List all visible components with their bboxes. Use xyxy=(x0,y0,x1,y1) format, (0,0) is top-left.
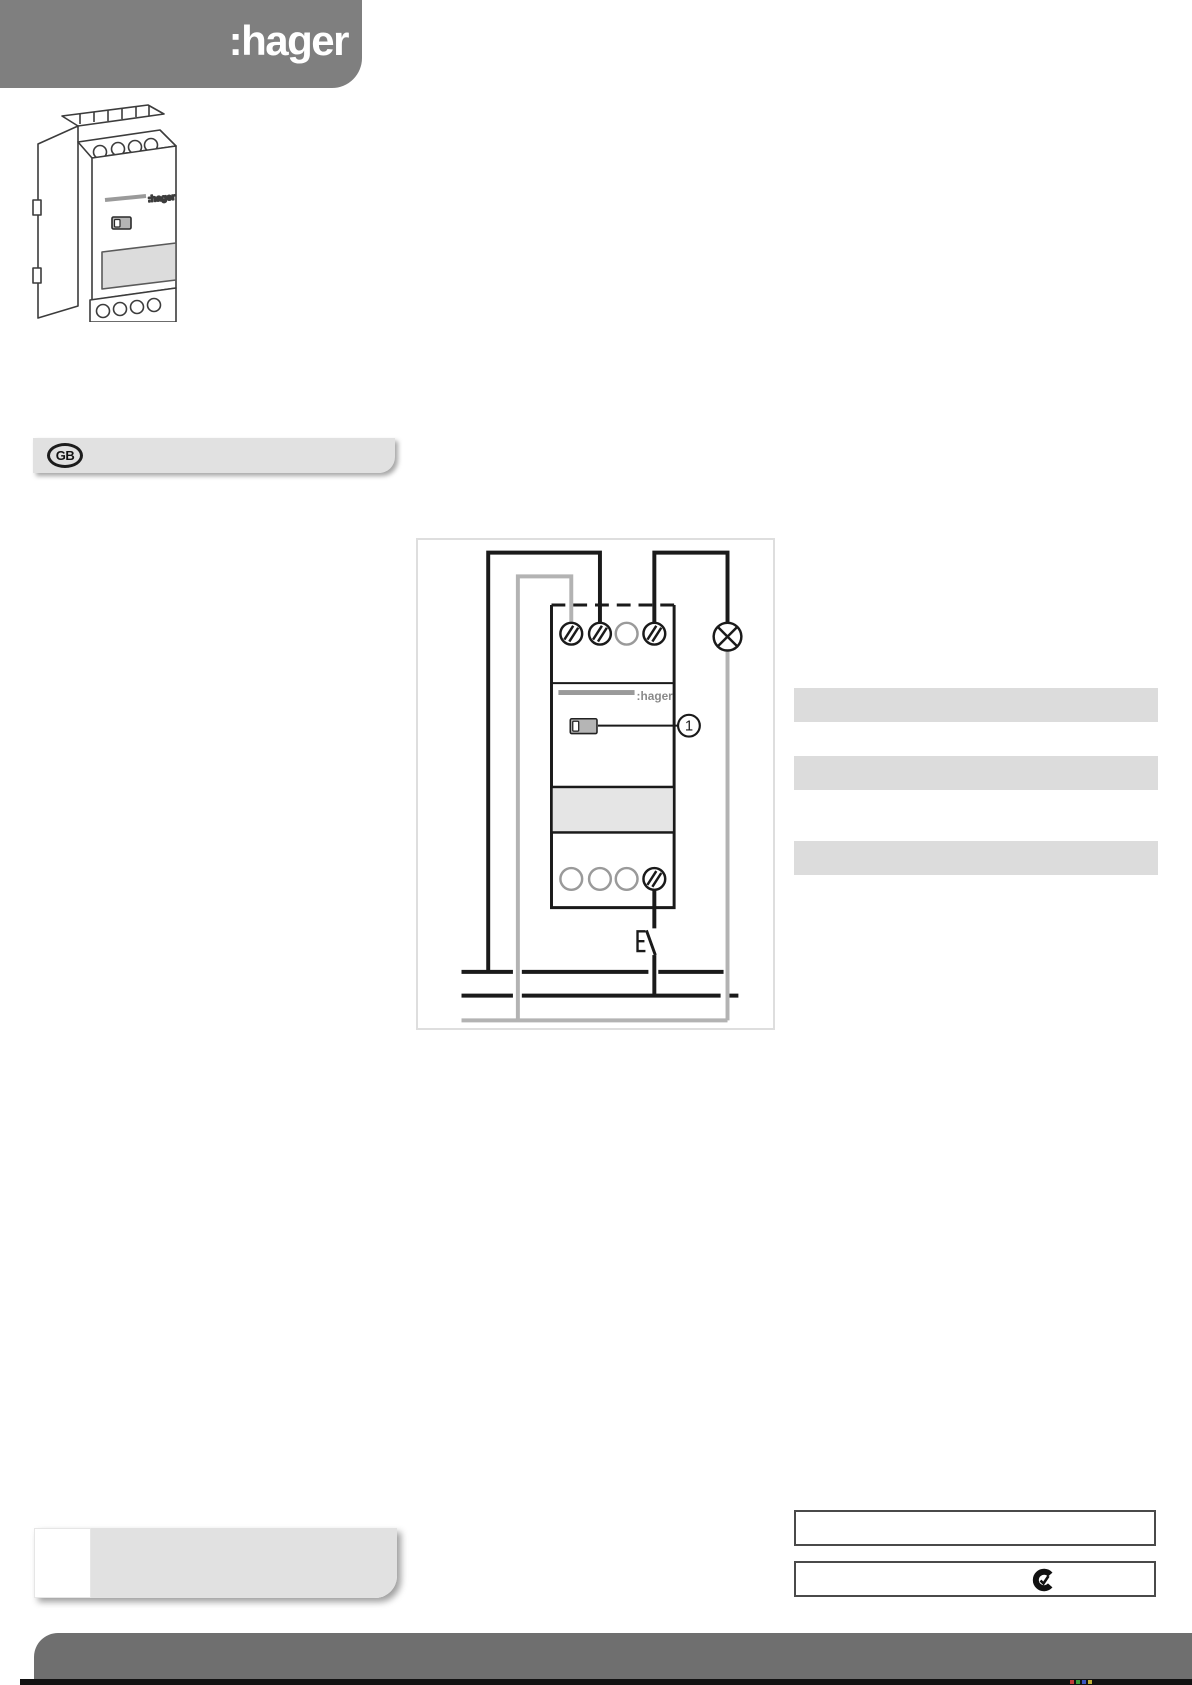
bottom-terminals xyxy=(560,868,665,890)
print-registration-marks xyxy=(1070,1680,1092,1684)
device-outline xyxy=(551,605,674,908)
terminal-plain-icon xyxy=(589,868,611,890)
terminal-plain-icon xyxy=(616,868,638,890)
callout-1-label: 1 xyxy=(685,719,693,735)
placeholder-bar-3 xyxy=(794,841,1158,875)
lamp-icon xyxy=(714,623,742,651)
terminal-hatched-icon xyxy=(643,868,665,890)
c-tick-icon xyxy=(1032,1568,1056,1592)
footer-bar xyxy=(34,1633,1192,1685)
device-label-recess xyxy=(102,243,176,289)
wiring-diagram: :hager 1 xyxy=(418,540,773,1028)
terminal-plain-icon xyxy=(616,623,638,645)
screw-terminal-icon xyxy=(131,301,144,314)
din-clip-notch xyxy=(33,268,41,283)
header-logo-bar: :hager xyxy=(0,0,362,88)
placeholder-bar-1 xyxy=(794,688,1158,722)
device-din-plate xyxy=(38,126,78,318)
spec-box-1 xyxy=(794,1510,1156,1546)
hager-logo: :hager xyxy=(229,20,348,68)
language-bar: GB xyxy=(33,438,395,473)
spec-box-2 xyxy=(794,1561,1156,1597)
push-button-icon xyxy=(638,930,656,955)
footnote-bar-white-segment xyxy=(34,1528,91,1598)
top-terminals xyxy=(560,623,665,645)
wire-live-black xyxy=(462,553,739,996)
footnote-bar xyxy=(34,1528,397,1598)
screw-terminal-icon xyxy=(148,299,161,312)
device-slider-knob xyxy=(115,220,121,228)
terminal-hatched-icon xyxy=(560,623,582,645)
terminal-hatched-icon xyxy=(589,623,611,645)
gb-label: GB xyxy=(56,448,75,463)
wiring-diagram-frame: :hager 1 xyxy=(416,538,775,1030)
brand-strip xyxy=(558,690,634,695)
din-clip-notch xyxy=(33,200,41,215)
screw-terminal-icon xyxy=(114,303,127,316)
device-illustration: :hager xyxy=(28,100,180,322)
page-bottom-edge xyxy=(20,1679,1192,1685)
terminal-plain-icon xyxy=(560,868,582,890)
diagram-brand-text: :hager xyxy=(637,689,674,703)
device-label-band xyxy=(551,787,674,832)
placeholder-bar-2 xyxy=(794,756,1158,790)
slider-knob xyxy=(573,721,579,731)
gb-badge: GB xyxy=(47,443,83,468)
terminal-hatched-icon xyxy=(643,623,665,645)
footnote-bar-gray-segment xyxy=(91,1528,397,1598)
screw-terminal-icon xyxy=(97,305,110,318)
callout-1: 1 xyxy=(598,715,700,737)
